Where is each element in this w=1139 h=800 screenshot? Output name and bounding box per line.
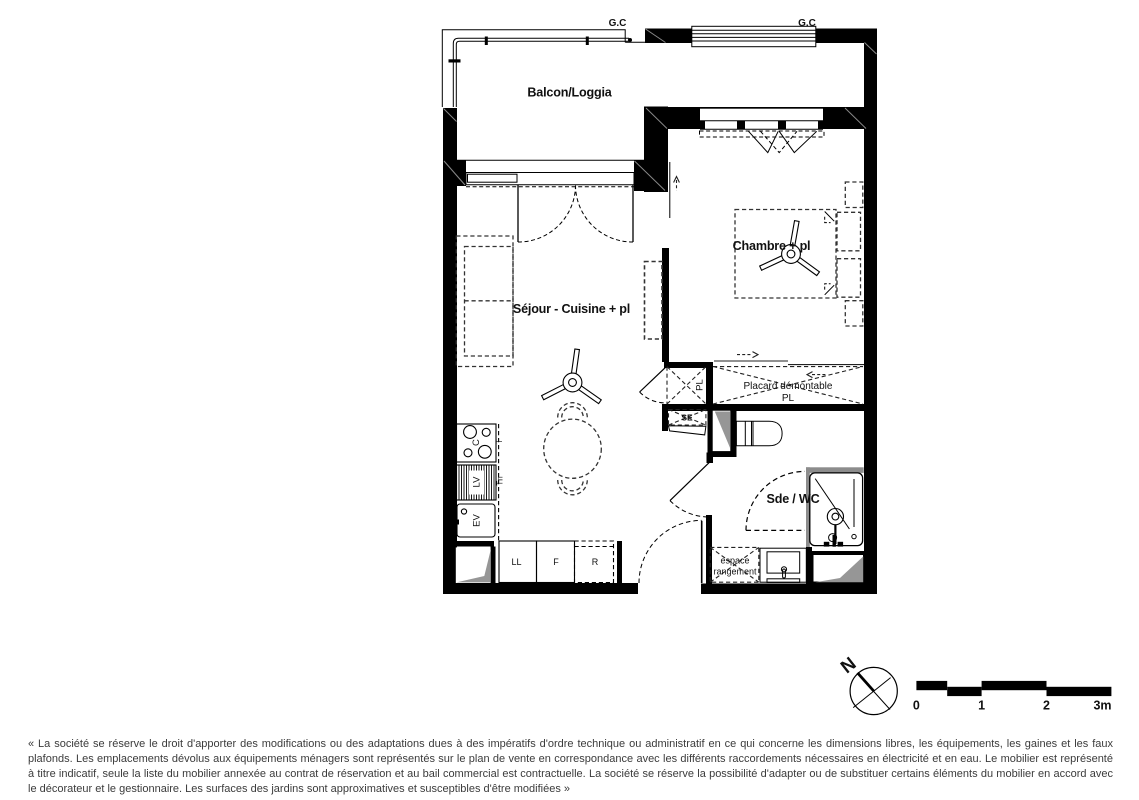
- svg-text:N: N: [836, 652, 859, 677]
- svg-text:G.C: G.C: [798, 18, 816, 29]
- svg-text:Placard démontable: Placard démontable: [744, 381, 833, 392]
- svg-text:1: 1: [978, 699, 985, 713]
- svg-text:Séjour - Cuisine + pl: Séjour - Cuisine + pl: [513, 302, 630, 316]
- svg-text:C: C: [471, 439, 482, 446]
- svg-text:LL: LL: [511, 557, 521, 567]
- svg-text:rangement: rangement: [713, 567, 757, 577]
- svg-text:Sde / WC: Sde / WC: [767, 492, 820, 506]
- svg-text:3m: 3m: [1093, 699, 1111, 713]
- svg-text:EV: EV: [472, 514, 483, 527]
- svg-text:PL: PL: [695, 379, 706, 391]
- svg-text:G.C: G.C: [609, 18, 627, 29]
- svg-text:LV: LV: [472, 476, 483, 488]
- svg-text:Balcon/Loggia: Balcon/Loggia: [527, 86, 612, 100]
- svg-text:0: 0: [913, 699, 920, 713]
- svg-text:Tn: Tn: [495, 476, 504, 485]
- svg-text:F: F: [553, 557, 559, 567]
- svg-text:R: R: [592, 557, 599, 567]
- svg-text:Chambre + pl: Chambre + pl: [733, 239, 811, 253]
- svg-text:espace: espace: [720, 556, 749, 566]
- svg-text:T: T: [495, 439, 504, 444]
- svg-text:SE: SE: [681, 413, 693, 423]
- svg-text:2: 2: [1043, 699, 1050, 713]
- svg-text:PL: PL: [782, 393, 795, 404]
